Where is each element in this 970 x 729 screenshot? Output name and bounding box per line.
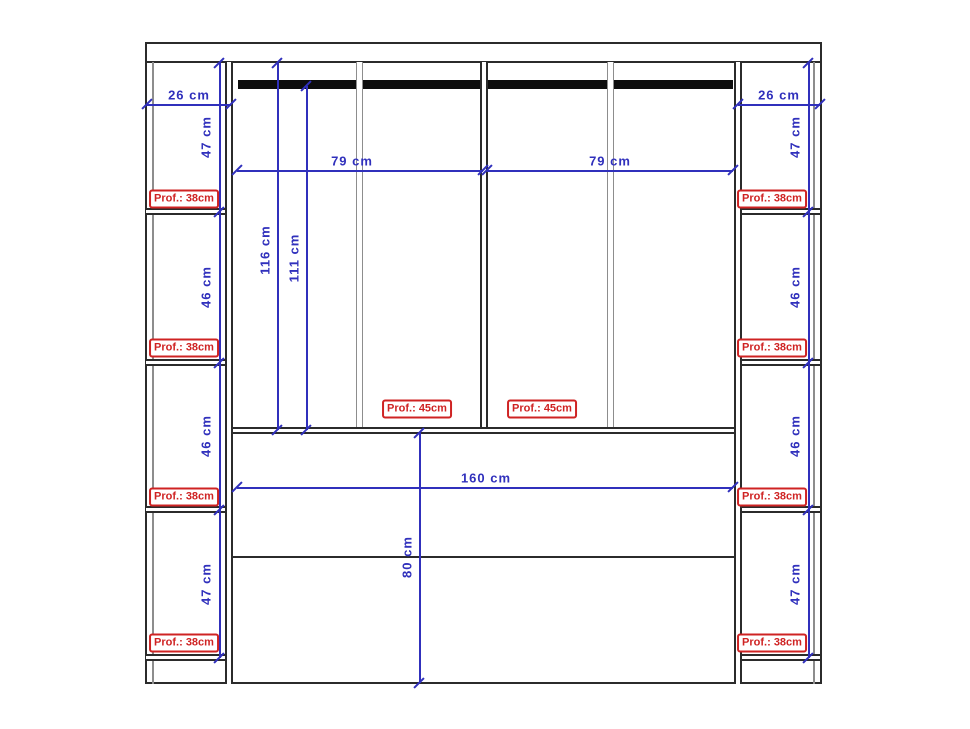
dimension-label: 111 cm <box>287 234 302 283</box>
depth-label: Prof.: 38cm <box>149 634 219 653</box>
wardrobe-technical-drawing: 26 cm26 cm47 cm46 cm46 cm47 cm47 cm46 cm… <box>0 0 970 729</box>
dimension-label: 116 cm <box>258 225 273 274</box>
dimension-line <box>487 170 733 172</box>
dimension-label: 46 cm <box>788 415 803 457</box>
depth-label: Prof.: 38cm <box>149 190 219 209</box>
depth-label: Prof.: 45cm <box>382 400 452 419</box>
dimension-label: 160 cm <box>461 471 511 486</box>
dimension-label: 26 cm <box>168 88 210 103</box>
dimension-line <box>277 63 279 430</box>
left-column-separator <box>225 62 233 684</box>
dimension-line <box>419 433 421 683</box>
wardrobe-divider-right <box>607 62 614 433</box>
dimension-label: 26 cm <box>758 88 800 103</box>
depth-label: Prof.: 38cm <box>737 488 807 507</box>
dimension-label: 79 cm <box>589 154 631 169</box>
depth-label: Prof.: 38cm <box>737 634 807 653</box>
dimension-label: 79 cm <box>331 154 373 169</box>
wardrobe-divider-left <box>356 62 363 433</box>
dimension-label: 46 cm <box>788 266 803 308</box>
dimension-line <box>237 170 483 172</box>
dimension-label: 46 cm <box>199 415 214 457</box>
depth-label: Prof.: 38cm <box>737 339 807 358</box>
depth-label: Prof.: 38cm <box>737 190 807 209</box>
dimension-label: 80 cm <box>400 536 415 578</box>
dimension-label: 47 cm <box>199 116 214 158</box>
dimension-label: 47 cm <box>199 563 214 605</box>
right-column-separator <box>734 62 742 684</box>
depth-label: Prof.: 38cm <box>149 488 219 507</box>
depth-label: Prof.: 38cm <box>149 339 219 358</box>
dimension-label: 47 cm <box>788 563 803 605</box>
dimension-label: 47 cm <box>788 116 803 158</box>
dimension-line <box>237 487 733 489</box>
dimension-label: 46 cm <box>199 266 214 308</box>
dimension-line <box>306 86 308 430</box>
depth-label: Prof.: 45cm <box>507 400 577 419</box>
wardrobe-divider-center <box>480 62 488 433</box>
